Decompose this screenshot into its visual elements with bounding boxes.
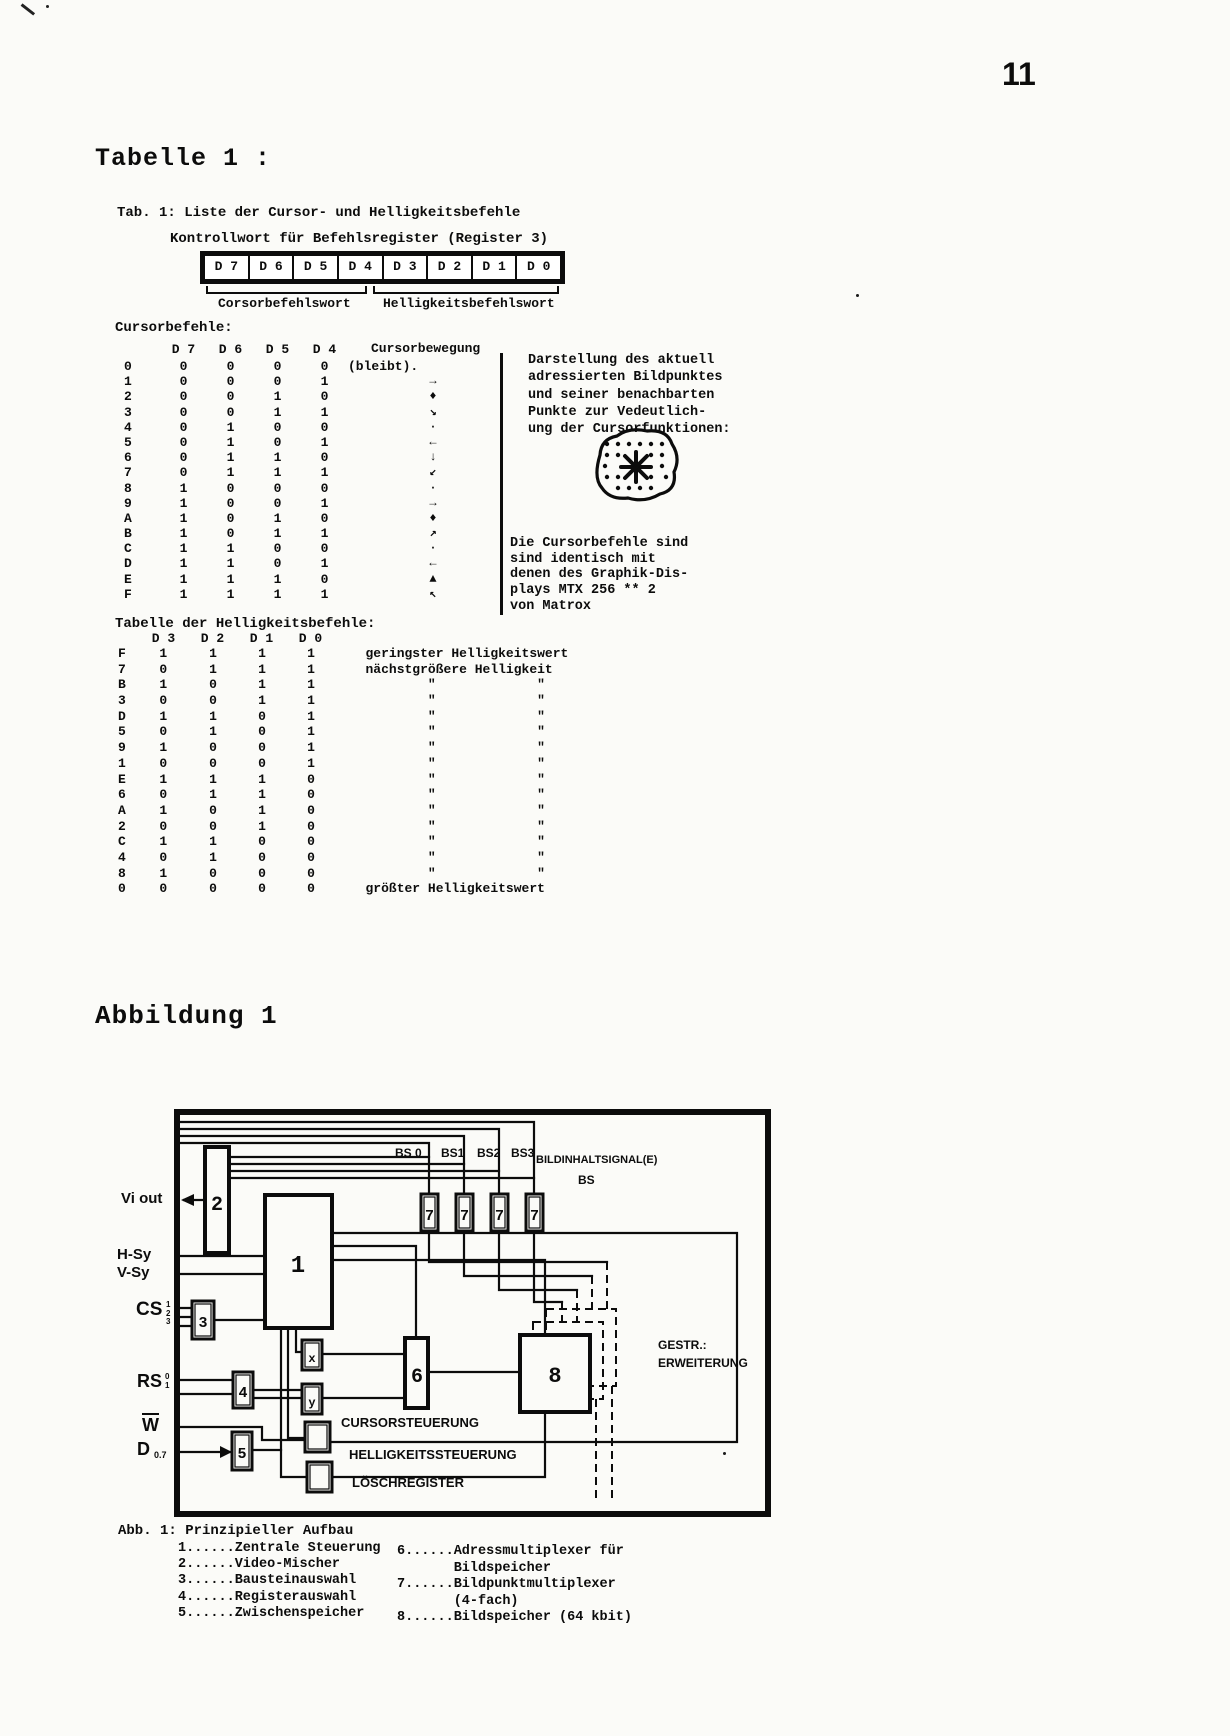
bit-d4: 0 <box>301 420 348 435</box>
bit-d1: 1 <box>238 787 287 803</box>
column-header: D 2 <box>188 631 237 646</box>
brightness-table-row: A 1 0 1 0 " " <box>110 803 616 819</box>
brightness-annotation: nächstgrößere Helligkeit <box>366 662 616 678</box>
hex-code: 8 <box>110 481 160 496</box>
bit-d3: 0 <box>138 756 189 772</box>
cursor-direction-arrow-icon: ↘ <box>413 405 453 420</box>
write-signal-label: W <box>142 1413 159 1436</box>
bit-d7: 1 <box>160 526 207 541</box>
bit-d3: 0 <box>138 724 189 740</box>
bit-d7: 1 <box>160 572 207 587</box>
block-label-6: 6 <box>411 1366 423 1389</box>
bs1-label: BS1 <box>441 1146 465 1160</box>
bit-d0: 1 <box>287 646 336 662</box>
spacer <box>348 389 413 404</box>
bit-d0: 1 <box>287 740 336 756</box>
bit-d3: 0 <box>138 881 189 897</box>
bit-d7: 0 <box>160 435 207 450</box>
text-line: plays MTX 256 ** 2 <box>510 583 688 599</box>
vi-out-signal-label: Vi out <box>121 1190 162 1207</box>
bit-d6: 0 <box>207 389 254 404</box>
hex-code: 9 <box>110 740 138 756</box>
bit-d5: 1 <box>254 465 301 480</box>
brightness-annotation: " " <box>366 803 616 819</box>
brightness-annotation: " " <box>366 740 616 756</box>
bit-d4: 1 <box>301 526 348 541</box>
bit-d7: 0 <box>160 359 207 374</box>
column-header: D 1 <box>237 631 286 646</box>
hex-code: 2 <box>110 819 138 835</box>
block-label-x: x <box>308 1352 315 1366</box>
bit-d4: 1 <box>301 465 348 480</box>
bit-d7: 0 <box>160 374 207 389</box>
block-label-4: 4 <box>238 1385 247 1402</box>
brightness-annotation: " " <box>366 819 616 835</box>
spacer <box>348 450 413 465</box>
bit-d6: 1 <box>207 450 254 465</box>
hex-code: 2 <box>110 389 160 404</box>
register-bit-cell: D 5 <box>294 256 339 279</box>
spacer <box>348 405 413 420</box>
bit-d0: 1 <box>287 709 336 725</box>
bit-d6: 1 <box>207 541 254 556</box>
register-bit-cell: D 6 <box>250 256 295 279</box>
block-label-1: 1 <box>291 1253 305 1280</box>
hex-code: 6 <box>110 450 160 465</box>
rs-wires <box>181 1380 233 1394</box>
spacer <box>348 572 413 587</box>
bit-d5: 1 <box>254 405 301 420</box>
bit-d3: 1 <box>138 834 189 850</box>
bit-d0: 0 <box>287 787 336 803</box>
bit-d5: 1 <box>254 587 301 602</box>
bs3-label: BS3 <box>511 1146 535 1160</box>
bs2-label: BS2 <box>477 1146 501 1160</box>
bit-d1: 0 <box>238 850 287 866</box>
bit-d0: 1 <box>287 724 336 740</box>
cursor-table-row: 6 0 1 1 0 ↓ <box>110 450 453 465</box>
bit-d6: 0 <box>207 359 254 374</box>
bit-d2: 0 <box>189 881 238 897</box>
bit-d3: 0 <box>138 662 189 678</box>
bit-d4: 0 <box>301 572 348 587</box>
bit-d4: 1 <box>301 374 348 389</box>
cursor-table-row: 9 1 0 0 1 → <box>110 496 453 511</box>
text-line: Darstellung des aktuell <box>528 352 731 369</box>
hex-code: F <box>110 646 138 662</box>
brightness-table-row: D 1 1 0 1 " " <box>110 709 616 725</box>
text-line: von Matrox <box>510 599 688 615</box>
data-bus-indices: 0.7 <box>154 1450 167 1460</box>
bit-d1: 1 <box>238 662 287 678</box>
figure-legend-left: 1......Zentrale Steuerung2......Video-Mi… <box>178 1541 381 1622</box>
bit-d6: 1 <box>207 587 254 602</box>
bit-d5: 0 <box>254 556 301 571</box>
brightness-table-row: 1 0 0 0 1 " " <box>110 756 616 772</box>
bit-d4: 0 <box>301 450 348 465</box>
brightness-table-row: C 1 1 0 0 " " <box>110 834 616 850</box>
cursor-word-bracket <box>206 286 367 294</box>
bit-d1: 1 <box>238 693 287 709</box>
cursor-compatibility-note: Die Cursorbefehle sindsind identisch mit… <box>510 536 688 615</box>
bit-d2: 0 <box>189 756 238 772</box>
bit-d6: 1 <box>207 556 254 571</box>
legend-item: 7......Bildpunktmultiplexer <box>397 1577 632 1594</box>
spacer <box>336 819 366 835</box>
register-bit-cell: D 0 <box>517 256 560 279</box>
brightness-annotation: geringster Helligkeitswert <box>366 646 616 662</box>
spacer <box>336 834 366 850</box>
h-sy-signal-label: H-Sy <box>117 1246 151 1263</box>
bit-d5: 0 <box>254 420 301 435</box>
bit-d7: 1 <box>160 587 207 602</box>
cursor-direction-arrow-icon: · <box>413 481 453 496</box>
spacer <box>336 724 366 740</box>
bit-d2: 0 <box>189 866 238 882</box>
cursor-table-header: D 7D 6D 5D 4 <box>160 342 348 357</box>
block-inner-border <box>308 1425 327 1449</box>
control-word-register-box: D 7D 6D 5D 4D 3D 2D 1D 0 <box>200 251 565 284</box>
bit-d5: 0 <box>254 496 301 511</box>
brightness-table-row: E 1 1 1 0 " " <box>110 772 616 788</box>
gestr-label-line1: GESTR.: <box>658 1338 707 1352</box>
bit-d3: 0 <box>138 693 189 709</box>
bit-d7: 0 <box>160 405 207 420</box>
bit-d0: 1 <box>287 662 336 678</box>
bit-d3: 1 <box>138 646 189 662</box>
bit-d6: 0 <box>207 526 254 541</box>
cursor-table-row: F 1 1 1 1 ↖ <box>110 587 453 602</box>
cursor-table-row: E 1 1 1 0 ▲ <box>110 572 453 587</box>
cursor-direction-arrow-icon: · <box>413 541 453 556</box>
brightness-annotation: " " <box>366 866 616 882</box>
spacer <box>348 374 413 389</box>
cursor-direction-arrow-icon: → <box>413 374 453 389</box>
block-label-y: y <box>308 1396 315 1410</box>
column-separator-line <box>500 353 503 615</box>
brightness-table-row: 7 0 1 1 1 nächstgrößere Helligkeit <box>110 662 616 678</box>
legend-item: 1......Zentrale Steuerung <box>178 1541 381 1557</box>
rs-signal-indices: 01 <box>165 1373 169 1390</box>
text-line: Punkte zur Vedeutlich- <box>528 404 731 421</box>
cursor-direction-arrow-icon: ♦ <box>413 389 453 404</box>
cursor-star-icon <box>621 452 651 482</box>
text-line: Die Cursorbefehle sind <box>510 536 688 552</box>
cursor-direction-arrow-icon: ← <box>413 556 453 571</box>
column-header: D 7 <box>160 342 207 357</box>
hex-code: 4 <box>110 420 160 435</box>
bit-d1: 0 <box>238 724 287 740</box>
bit-d3: 1 <box>138 740 189 756</box>
hex-code: E <box>110 572 160 587</box>
bit-d4: 0 <box>301 541 348 556</box>
page-number: 11 <box>1002 56 1036 93</box>
bit-d1: 0 <box>238 881 287 897</box>
spacer <box>348 481 413 496</box>
spacer <box>348 465 413 480</box>
text-line: denen des Graphik-Dis- <box>510 567 688 583</box>
bit-d2: 1 <box>189 772 238 788</box>
hex-code: E <box>110 772 138 788</box>
brightness-annotation: " " <box>366 850 616 866</box>
spacer <box>348 511 413 526</box>
cursor-direction-arrow-icon: ↓ <box>413 450 453 465</box>
bit-d0: 1 <box>287 693 336 709</box>
bit-d6: 1 <box>207 420 254 435</box>
bs-bus-label: BS <box>578 1173 595 1187</box>
scan-artifact <box>46 5 49 8</box>
section-heading-abbildung: Abbildung 1 <box>95 1001 278 1031</box>
bit-d7: 1 <box>160 556 207 571</box>
spacer <box>348 496 413 511</box>
cursorsteuerung-label: CURSORSTEUERUNG <box>341 1415 479 1430</box>
bit-d6: 1 <box>207 435 254 450</box>
bit-d2: 0 <box>189 803 238 819</box>
spacer <box>336 787 366 803</box>
brightness-table-row: 9 1 0 0 1 " " <box>110 740 616 756</box>
block-label-7: 7 <box>425 1208 434 1225</box>
brightness-table-row: 2 0 0 1 0 " " <box>110 819 616 835</box>
bit-d6: 0 <box>207 496 254 511</box>
brightness-table-row: 5 0 1 0 1 " " <box>110 724 616 740</box>
section-heading-tabelle: Tabelle 1 : <box>95 144 271 173</box>
bit-d3: 1 <box>138 803 189 819</box>
cursor-direction-arrow-icon: ▲ <box>413 572 453 587</box>
bit-d4: 1 <box>301 496 348 511</box>
bit-d2: 1 <box>189 709 238 725</box>
cursor-table-row: 8 1 0 0 0 · <box>110 481 453 496</box>
vi-out-arrowhead <box>181 1194 194 1206</box>
brightness-table-row: 0 0 0 0 0 größter Helligkeitswert <box>110 881 616 897</box>
block-label-8: 8 <box>548 1364 561 1389</box>
bit-d2: 1 <box>189 646 238 662</box>
hex-code: 5 <box>110 435 160 450</box>
spacer <box>336 693 366 709</box>
cursor-table-row: C 1 1 0 0 · <box>110 541 453 556</box>
bit-d7: 1 <box>160 496 207 511</box>
bildinhaltsignal-label: BILDINHALTSIGNAL(E) <box>536 1154 658 1166</box>
bit-d7: 0 <box>160 465 207 480</box>
bit-d3: 1 <box>138 866 189 882</box>
bit-d7: 0 <box>160 450 207 465</box>
cursor-table-row: 7 0 1 1 1 ↙ <box>110 465 453 480</box>
bit-d0: 0 <box>287 772 336 788</box>
bit-d7: 1 <box>160 481 207 496</box>
bit-d0: 1 <box>287 677 336 693</box>
brightness-table-title: Tabelle der Helligkeitsbefehle: <box>115 616 375 632</box>
spacer <box>336 803 366 819</box>
bit-d5: 1 <box>254 511 301 526</box>
bit-d4: 1 <box>301 556 348 571</box>
hex-code: A <box>110 511 160 526</box>
hex-code: 1 <box>110 374 160 389</box>
hex-code: B <box>110 677 138 693</box>
bit-d0: 0 <box>287 881 336 897</box>
spacer <box>336 866 366 882</box>
pixel-neighbourhood-illustration <box>586 428 686 508</box>
bit-d5: 1 <box>254 526 301 541</box>
bit-d7: 1 <box>160 541 207 556</box>
spacer <box>348 420 413 435</box>
spacer <box>348 556 413 571</box>
helligkeitssteuerung-label: HELLIGKEITSSTEUERUNG <box>349 1447 517 1462</box>
spacer <box>336 646 366 662</box>
bit-d4: 0 <box>301 359 348 374</box>
bit-d1: 1 <box>238 772 287 788</box>
figure-legend-right: 6......Adressmultiplexer für Bildspeiche… <box>397 1544 632 1627</box>
spacer <box>336 740 366 756</box>
block-diagram: 1 2 3 4 5 6 7 7 7 7 8 x y BS 0 BS1 BS2 B… <box>100 1105 800 1525</box>
bit-d1: 0 <box>238 834 287 850</box>
block-label-7: 7 <box>460 1208 469 1225</box>
wire <box>253 1390 302 1398</box>
brightness-annotation: " " <box>366 693 616 709</box>
scanned-document-page: 11 Tabelle 1 : Tab. 1: Liste der Cursor-… <box>0 0 1230 1736</box>
column-header: D 3 <box>139 631 188 646</box>
bit-d7: 1 <box>160 511 207 526</box>
hex-code: 7 <box>110 465 160 480</box>
cursor-table-row: D 1 1 0 1 ← <box>110 556 453 571</box>
bit-d0: 0 <box>287 803 336 819</box>
rs-signal-label: RS <box>137 1371 162 1392</box>
brightness-annotation: " " <box>366 756 616 772</box>
cursor-table-title: Cursorbefehle: <box>115 320 233 336</box>
bit-d4: 1 <box>301 587 348 602</box>
bit-d0: 1 <box>287 756 336 772</box>
bit-d2: 0 <box>189 740 238 756</box>
brightness-table-row: F 1 1 1 1 geringster Helligkeitswert <box>110 646 616 662</box>
bit-d3: 1 <box>138 772 189 788</box>
bit-d0: 0 <box>287 834 336 850</box>
bit-d5: 0 <box>254 359 301 374</box>
cursor-table-row: A 1 0 1 0 ♦ <box>110 511 453 526</box>
block-inner-border <box>310 1465 329 1489</box>
legend-item: 4......Registerauswahl <box>178 1590 381 1606</box>
brightness-word-label: Helligkeitsbefehlswort <box>383 296 555 311</box>
bit-d5: 0 <box>254 481 301 496</box>
spacer <box>348 526 413 541</box>
cursor-direction-arrow-icon: ← <box>413 435 453 450</box>
cursor-table-row: 3 0 0 1 1 ↘ <box>110 405 453 420</box>
cursor-direction-arrow-icon: ↙ <box>413 465 453 480</box>
bit-d3: 0 <box>138 819 189 835</box>
cursor-direction-arrow-icon: ↖ <box>413 587 453 602</box>
cursor-table-row: 1 0 0 0 1 → <box>110 374 453 389</box>
register-bit-cell: D 1 <box>473 256 518 279</box>
bit-d1: 1 <box>238 803 287 819</box>
d-bus-arrowhead <box>220 1446 232 1458</box>
block-label-7: 7 <box>495 1208 504 1225</box>
spacer <box>336 881 366 897</box>
brightness-word-bracket <box>373 286 559 294</box>
cs-signal-label: CS <box>136 1299 162 1321</box>
table-caption-line2: Kontrollwort für Befehlsregister (Regist… <box>170 231 548 247</box>
bit-d6: 0 <box>207 405 254 420</box>
spacer <box>336 709 366 725</box>
bit-d5: 1 <box>254 450 301 465</box>
bit-d4: 0 <box>301 481 348 496</box>
wire <box>429 1233 607 1262</box>
hex-code: 1 <box>110 756 138 772</box>
bit-d0: 0 <box>287 866 336 882</box>
hex-code: C <box>110 541 160 556</box>
block-label-3: 3 <box>198 1315 207 1332</box>
hex-code: 3 <box>110 693 138 709</box>
column-header: D 4 <box>301 342 348 357</box>
brightness-table-header: D 3D 2D 1D 0 <box>139 631 335 646</box>
brightness-table-row: 8 1 0 0 0 " " <box>110 866 616 882</box>
cursor-direction-arrow-icon: · <box>413 420 453 435</box>
bit-d3: 0 <box>138 787 189 803</box>
bit-d1: 1 <box>238 677 287 693</box>
wire <box>534 1233 562 1302</box>
gestr-label-line2: ERWEITERUNG <box>658 1356 748 1370</box>
brightness-table-row: 6 0 1 1 0 " " <box>110 787 616 803</box>
cursor-table-row: 2 0 0 1 0 ♦ <box>110 389 453 404</box>
bit-d5: 1 <box>254 389 301 404</box>
bit-d3: 0 <box>138 850 189 866</box>
bit-d0: 0 <box>287 850 336 866</box>
legend-item: 8......Bildspeicher (64 kbit) <box>397 1610 632 1627</box>
cursor-table-row: 5 0 1 0 1 ← <box>110 435 453 450</box>
bit-d5: 0 <box>254 541 301 556</box>
bit-d3: 1 <box>138 709 189 725</box>
bit-d2: 1 <box>189 850 238 866</box>
brightness-annotation: " " <box>366 677 616 693</box>
cursor-table-row: B 1 0 1 1 ↗ <box>110 526 453 541</box>
brightness-annotation: " " <box>366 772 616 788</box>
hex-code: D <box>110 709 138 725</box>
bit-d1: 0 <box>238 709 287 725</box>
wire <box>332 1260 545 1335</box>
column-header: D 0 <box>286 631 335 646</box>
brightness-annotation: " " <box>366 834 616 850</box>
legend-item: 6......Adressmultiplexer für <box>397 1544 632 1561</box>
spacer <box>336 772 366 788</box>
bit-d5: 1 <box>254 572 301 587</box>
spacer <box>348 541 413 556</box>
bit-d6: 1 <box>207 465 254 480</box>
brightness-annotation: größter Helligkeitswert <box>366 881 616 897</box>
hex-code: F <box>110 587 160 602</box>
register-bit-cell: D 4 <box>339 256 384 279</box>
spacer <box>348 587 413 602</box>
wire <box>464 1233 592 1276</box>
movement-column-header: Cursorbewegung <box>371 341 480 356</box>
bit-d5: 0 <box>254 374 301 389</box>
text-line: sind identisch mit <box>510 552 688 568</box>
data-bus-label: D <box>137 1439 150 1460</box>
bit-d2: 0 <box>189 677 238 693</box>
loeschregister-label: LÖSCHREGISTER <box>352 1475 465 1490</box>
spacer <box>336 662 366 678</box>
cursor-direction-arrow-icon <box>413 359 453 374</box>
bit-d6: 1 <box>207 572 254 587</box>
register-bit-cells: D 7D 6D 5D 4D 3D 2D 1D 0 <box>204 255 561 280</box>
v-sy-signal-label: V-Sy <box>117 1264 150 1281</box>
hex-code: 6 <box>110 787 138 803</box>
bit-d1: 0 <box>238 740 287 756</box>
bit-d2: 0 <box>189 693 238 709</box>
figure-caption: Abb. 1: Prinzipieller Aufbau <box>118 1523 353 1539</box>
bit-d4: 1 <box>301 435 348 450</box>
cursor-table-row: 4 0 1 0 0 · <box>110 420 453 435</box>
bit-d0: 0 <box>287 819 336 835</box>
block-label-5: 5 <box>237 1446 246 1463</box>
hex-code: 5 <box>110 724 138 740</box>
register-bit-cell: D 3 <box>384 256 429 279</box>
brightness-table-row: 3 0 0 1 1 " " <box>110 693 616 709</box>
